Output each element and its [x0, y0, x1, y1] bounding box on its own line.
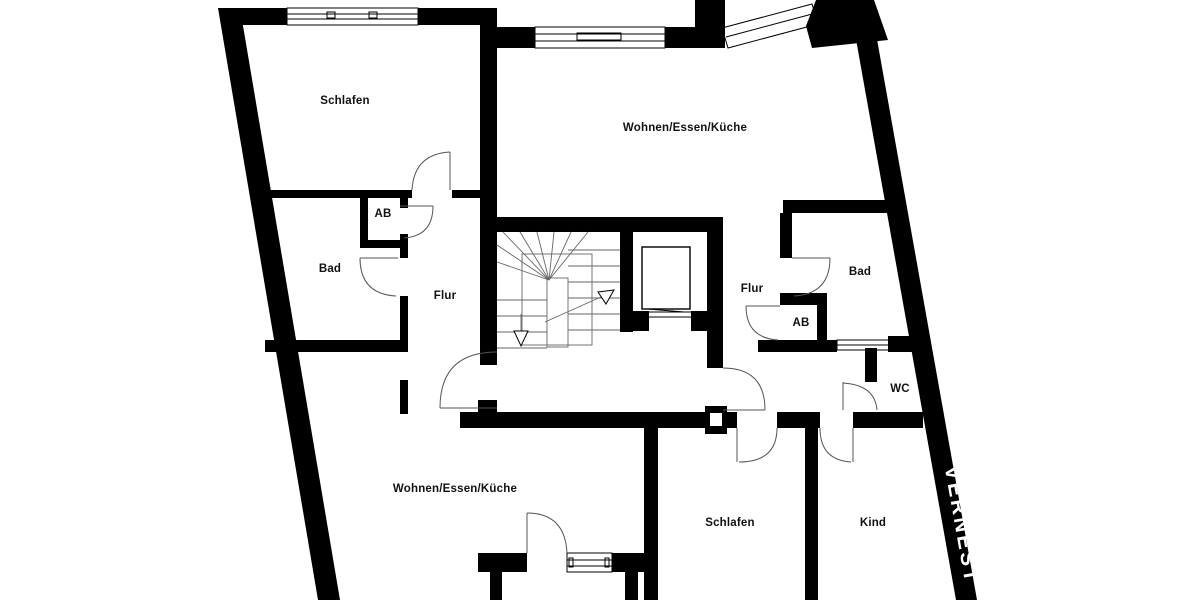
elevator-sill-stub-left [633, 311, 649, 331]
wohnen-room-wall-vert2 [625, 572, 638, 600]
wc-left-wall [865, 348, 877, 382]
door-bad-right [792, 258, 830, 296]
top-wall-left-seg1 [225, 8, 287, 25]
floorplan-drawing: Schlafen Wohnen/Essen/Küche AB Bad Flur … [0, 0, 1200, 600]
room-label-flur-left: Flur [434, 290, 457, 302]
window-top-center [535, 27, 665, 48]
room-label-ab-left: AB [374, 208, 391, 220]
elevator-car [642, 247, 690, 312]
bad-left-wall-seg1 [780, 213, 792, 258]
wohnen-room-wall-seg2 [612, 553, 644, 572]
schlafen-bottom-wall-seg2 [452, 190, 480, 198]
room-label-schlafen-left: Schlafen [320, 95, 370, 107]
stair-up-arrow-icon [545, 290, 614, 322]
floorplan-page: Schlafen Wohnen/Essen/Küche AB Bad Flur … [0, 0, 1200, 600]
bad-top-wall [783, 200, 888, 213]
flur-bottom-wall [758, 340, 837, 352]
door-kind [820, 428, 853, 462]
stair-down-arrow-icon [514, 314, 528, 346]
door-wohnen-left-interior [527, 513, 567, 553]
room-label-schlafen-bottom: Schlafen [705, 517, 755, 529]
room-label-kind: Kind [860, 517, 886, 529]
door-bad-left [360, 258, 398, 296]
interior-walls-right-apartment [644, 200, 930, 600]
room-label-wohnen-right: Wohnen/Essen/Küche [623, 122, 747, 134]
flur-wall-seg4 [400, 380, 408, 414]
room-label-flur-right: Flur [741, 283, 764, 295]
entry-hinge-stub [478, 400, 497, 412]
window-top-right-angled [722, 4, 818, 48]
room-label-bad-right: Bad [849, 266, 871, 278]
corridor-wall-seg1 [460, 412, 737, 428]
window-bottom-left-room [567, 553, 612, 572]
elevator-right-wall [707, 232, 723, 368]
room-label-bad-left: Bad [319, 263, 341, 275]
room-label-wc: WC [890, 383, 910, 395]
exterior-walls [218, 0, 977, 600]
top-wall-left-seg2 [418, 8, 482, 25]
window-top-left [287, 8, 418, 25]
staircase [497, 232, 620, 348]
wohnen-room-wall-seg1 [478, 553, 527, 572]
stairwell-top-wall [480, 217, 723, 232]
center-spine-wall [480, 8, 497, 365]
wohnen-schlafen-divider [644, 428, 658, 600]
windows [287, 4, 890, 572]
room-label-ab-right: AB [792, 317, 809, 329]
top-wall-right-seg2 [665, 27, 697, 48]
corridor-wall-seg3 [853, 412, 923, 428]
room-label-wohnen-left: Wohnen/Essen/Küche [393, 483, 517, 495]
top-pier [695, 0, 725, 48]
elevator-sill-stub-right [691, 311, 707, 331]
schlafen-bottom-wall-seg1 [258, 190, 412, 198]
wohnen-room-wall-vert1 [490, 572, 502, 600]
door-entry-right-apartment [723, 368, 765, 410]
schlafen-kind-divider [805, 420, 818, 600]
bad-bottom-wall [265, 340, 408, 352]
door-schlafen-left [412, 152, 450, 190]
door-ab-right [746, 306, 780, 340]
door-wc [843, 382, 877, 410]
window-bad-right [837, 340, 890, 350]
corridor-wall [460, 406, 923, 434]
stairwell-core [480, 217, 723, 368]
elevator-left-wall [620, 232, 633, 332]
door-ab-left [400, 206, 433, 238]
step-wall-to-slant [888, 336, 930, 352]
top-wall-right-seg1 [497, 27, 535, 48]
door-schlafen-bottom [737, 428, 777, 462]
